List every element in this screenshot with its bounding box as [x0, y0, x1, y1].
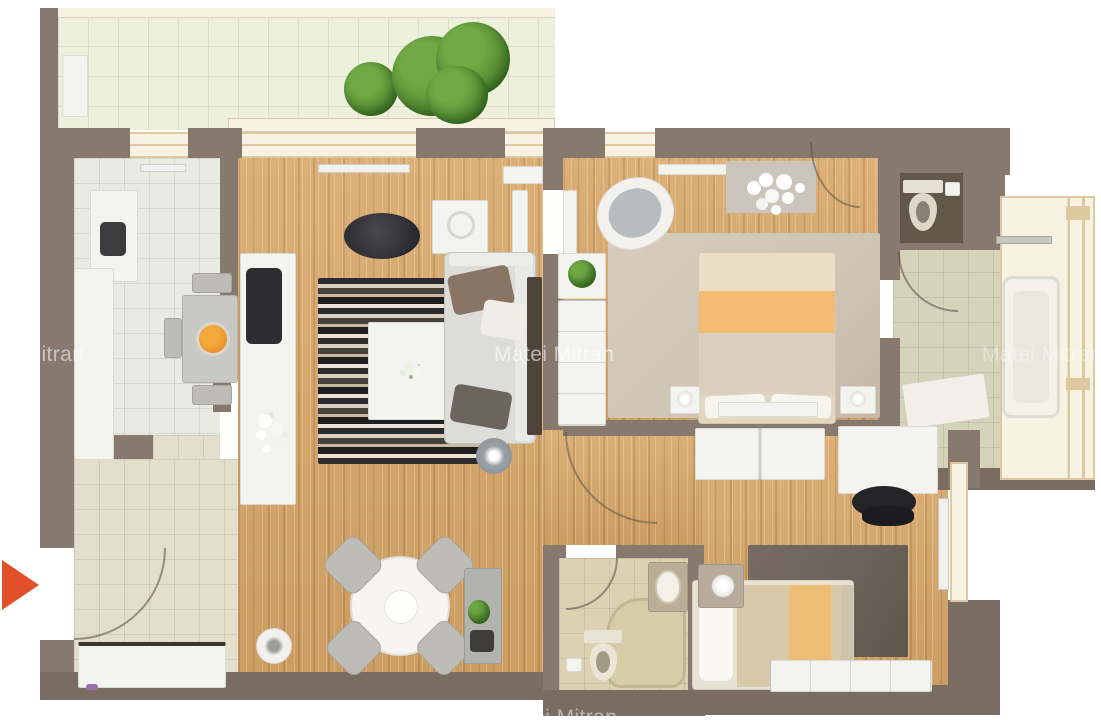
- kitchen-hall-connector: [153, 435, 220, 461]
- chandelier-mat: [726, 161, 816, 213]
- top-wall-seg-3: [416, 128, 505, 162]
- small-stool: [256, 628, 292, 664]
- window-living-large: [242, 132, 416, 158]
- wc-toilet-tank: [903, 180, 943, 193]
- floor-lamp: [476, 438, 512, 474]
- washbasin2-sink: [655, 570, 681, 604]
- kitchen-sink: [100, 222, 126, 256]
- towel-radiator: [996, 236, 1052, 244]
- chandelier: [758, 172, 774, 188]
- floor-plan: Matei Mitran Matei Mitran Matei Mitran M…: [0, 0, 1101, 720]
- watermark-bottom-left: Matei Mitran: [36, 707, 156, 720]
- fruit-bowl: [196, 322, 230, 356]
- nightstand-lamp-left: [677, 391, 693, 407]
- living-bedroom1-wall-upper: [543, 160, 563, 190]
- wc-bath-divider: [893, 243, 963, 250]
- nightstand-lamp-right: [850, 391, 866, 407]
- wc-right-wall: [963, 148, 1005, 250]
- door-leaf-living: [512, 190, 528, 254]
- bedroom1-plant: [568, 260, 596, 288]
- door-leaf-bedroom1: [563, 190, 577, 254]
- watermark-left: Matei Mitran: [0, 343, 84, 367]
- bath2-top-wall-right: [616, 545, 693, 558]
- kitchen-chair-left: [164, 318, 182, 358]
- bedroom2-radiator: [938, 498, 949, 590]
- bedroom1-door-gap: [543, 190, 563, 254]
- balcony-planter-cabinet: [62, 55, 88, 117]
- cooktop: [246, 268, 282, 344]
- bed-bench: [718, 402, 818, 417]
- bedroom1-right-wall-upper: [878, 158, 900, 280]
- bay-frame-corner-top: [1066, 206, 1090, 220]
- bedroom2-window: [950, 462, 968, 602]
- wall-shelf: [503, 166, 543, 184]
- toilet2-tank: [584, 630, 622, 643]
- bedroom2-dresser: [695, 428, 825, 480]
- balcony-left-wall: [40, 8, 58, 132]
- bath2-left-wall: [543, 545, 559, 690]
- console-decor: [470, 630, 494, 652]
- sofa-pillow-white: [479, 299, 528, 341]
- desk: [838, 426, 938, 494]
- bay-frame-corner-bottom: [1066, 378, 1090, 390]
- kitchen-window-radiator: [140, 164, 186, 172]
- office-chair-back: [862, 506, 914, 526]
- wc-shelf: [945, 182, 960, 196]
- watermark-bottom-center: Matei Mitran: [497, 706, 617, 720]
- bed-blanket-orange: [699, 291, 835, 333]
- potted-tree-large: [392, 22, 512, 126]
- balcony-railing: [40, 8, 555, 18]
- decor-plate: [447, 211, 475, 239]
- flower-vase: [258, 414, 272, 428]
- left-outer-wall: [40, 128, 74, 548]
- console-plant: [468, 600, 490, 624]
- coffee-table-flowers: [404, 362, 414, 372]
- top-wall-seg-2: [188, 128, 242, 162]
- potted-plant-small: [344, 62, 398, 116]
- bath2-top-wall-left: [548, 545, 566, 558]
- wardrobe: [770, 660, 932, 692]
- pouf-dark: [344, 213, 420, 259]
- window-kitchen: [130, 132, 188, 158]
- play-arrow[interactable]: [2, 560, 39, 610]
- kitchen-chair-bottom: [192, 385, 232, 405]
- entry-sideboard: [78, 642, 226, 688]
- bedroom1-right-wall-lower: [878, 338, 900, 422]
- bedroom2-right-wall-lower: [948, 600, 1000, 700]
- living-window-radiator: [318, 164, 410, 173]
- entry-decor-purple: [86, 684, 98, 690]
- kitchen-chair-top: [192, 273, 232, 293]
- watermark-right: Matei Mitran: [982, 343, 1101, 367]
- window-bedroom1: [605, 132, 655, 158]
- bedroom2-lamp: [711, 574, 735, 598]
- top-wall-seg-4: [543, 128, 605, 162]
- watermark-center: Matei Mitran: [494, 343, 614, 367]
- bed-double: [698, 252, 836, 424]
- bath2-mat: [566, 658, 582, 672]
